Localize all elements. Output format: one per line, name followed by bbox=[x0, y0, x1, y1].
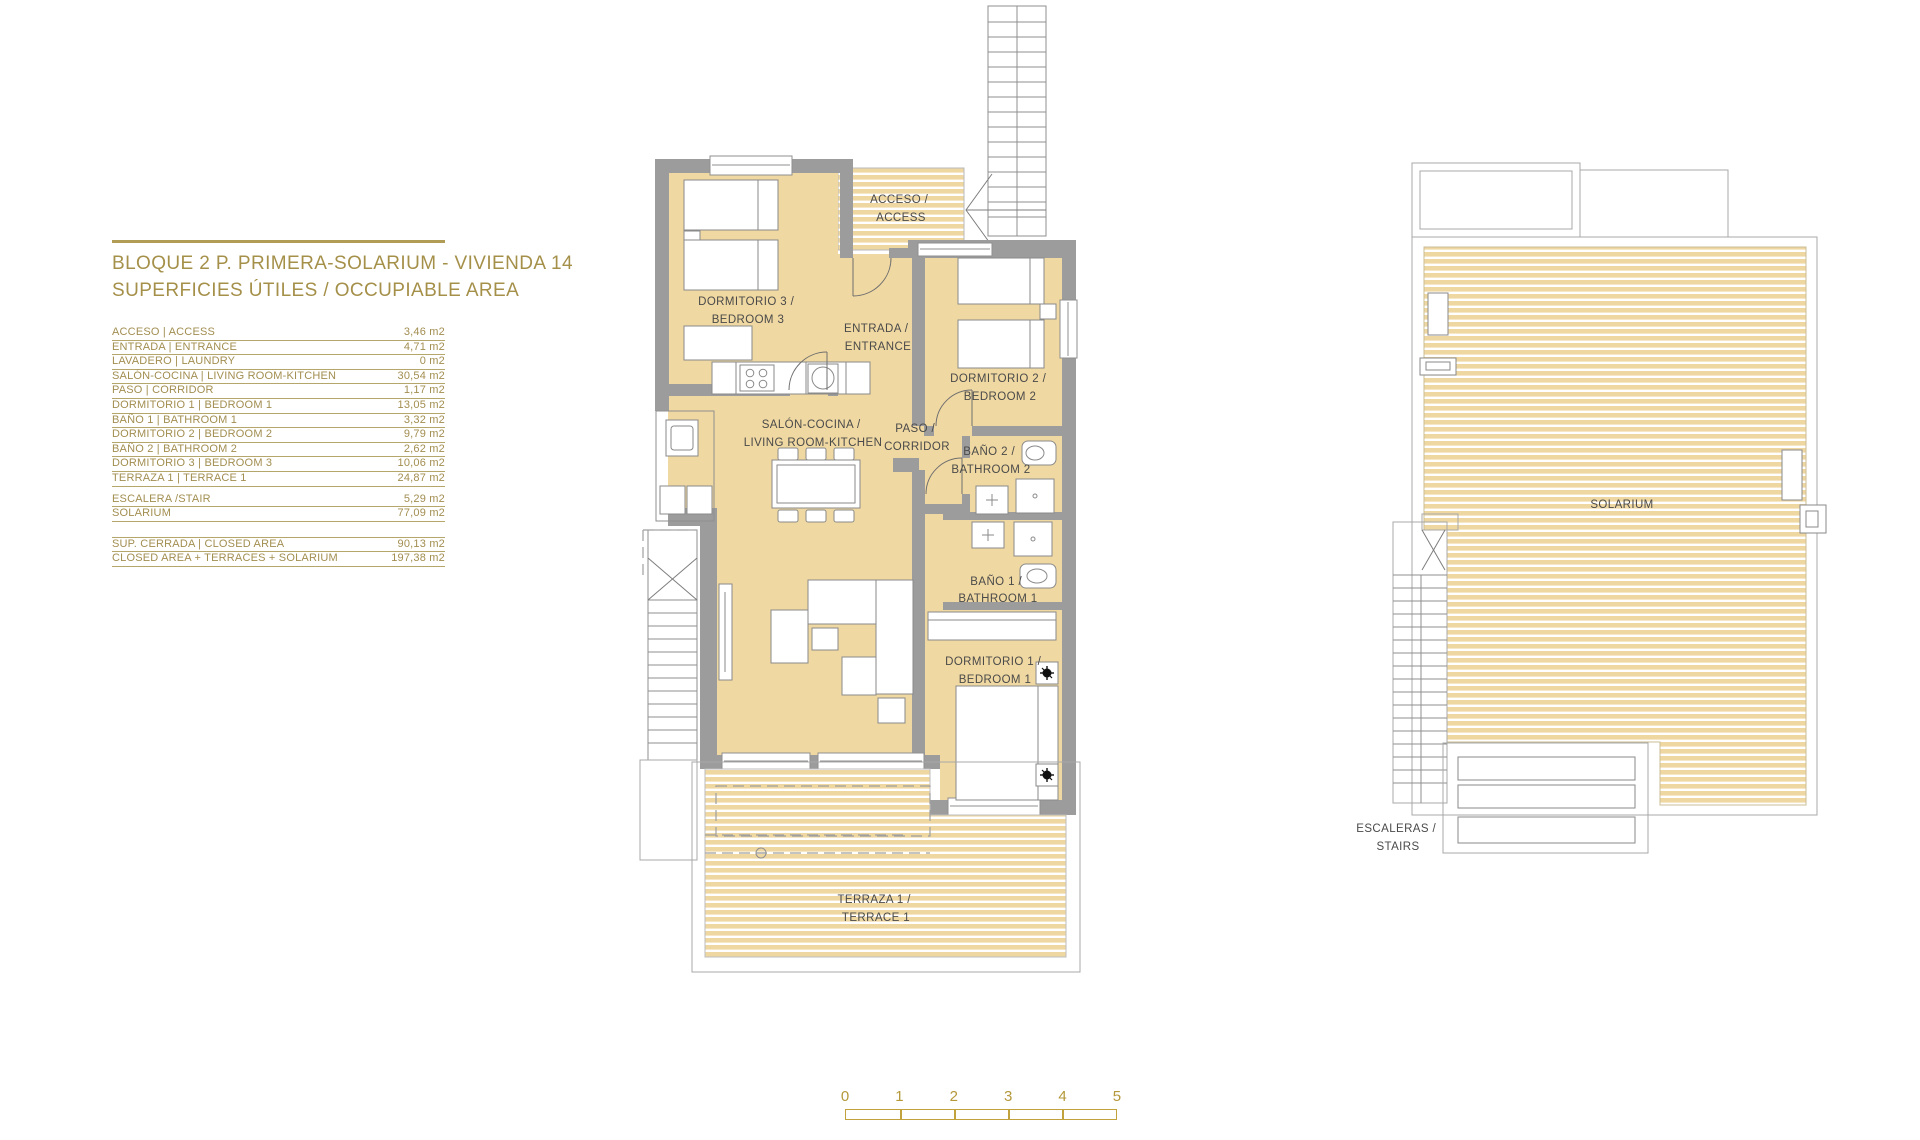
scale-divider bbox=[900, 1110, 902, 1119]
solarium-benches bbox=[1443, 743, 1648, 853]
stair-direction-arrow bbox=[966, 174, 1046, 246]
scale-bar-rule bbox=[845, 1109, 1117, 1120]
scale-divider bbox=[1062, 1110, 1064, 1119]
scale-tick-labels: 012345 bbox=[845, 1088, 1117, 1105]
label-solarium: SOLARIUM bbox=[1590, 499, 1653, 511]
side-stair bbox=[640, 530, 697, 860]
main-floor-plan: ACCESO / ACCESS DORMITORIO 3 / BEDROOM 3… bbox=[640, 6, 1080, 972]
acceso-area bbox=[838, 168, 964, 250]
scale-bar: 012345 bbox=[845, 1088, 1117, 1120]
scale-divider bbox=[954, 1110, 956, 1119]
upper-stair-shaft bbox=[966, 6, 1046, 246]
label-escaleras: ESCALERAS / STAIRS bbox=[1356, 823, 1439, 853]
dining-table bbox=[772, 448, 860, 522]
floor-plan-drawing: ACCESO / ACCESS DORMITORIO 3 / BEDROOM 3… bbox=[0, 0, 1920, 1140]
scale-divider bbox=[1008, 1110, 1010, 1119]
solarium-hatch bbox=[1424, 247, 1806, 805]
floor-plan-sheet: BLOQUE 2 P. PRIMERA-SOLARIUM - VIVIENDA … bbox=[0, 0, 1920, 1140]
solarium-plan: SOLARIUM ESCALERAS / STAIRS bbox=[1356, 163, 1826, 853]
